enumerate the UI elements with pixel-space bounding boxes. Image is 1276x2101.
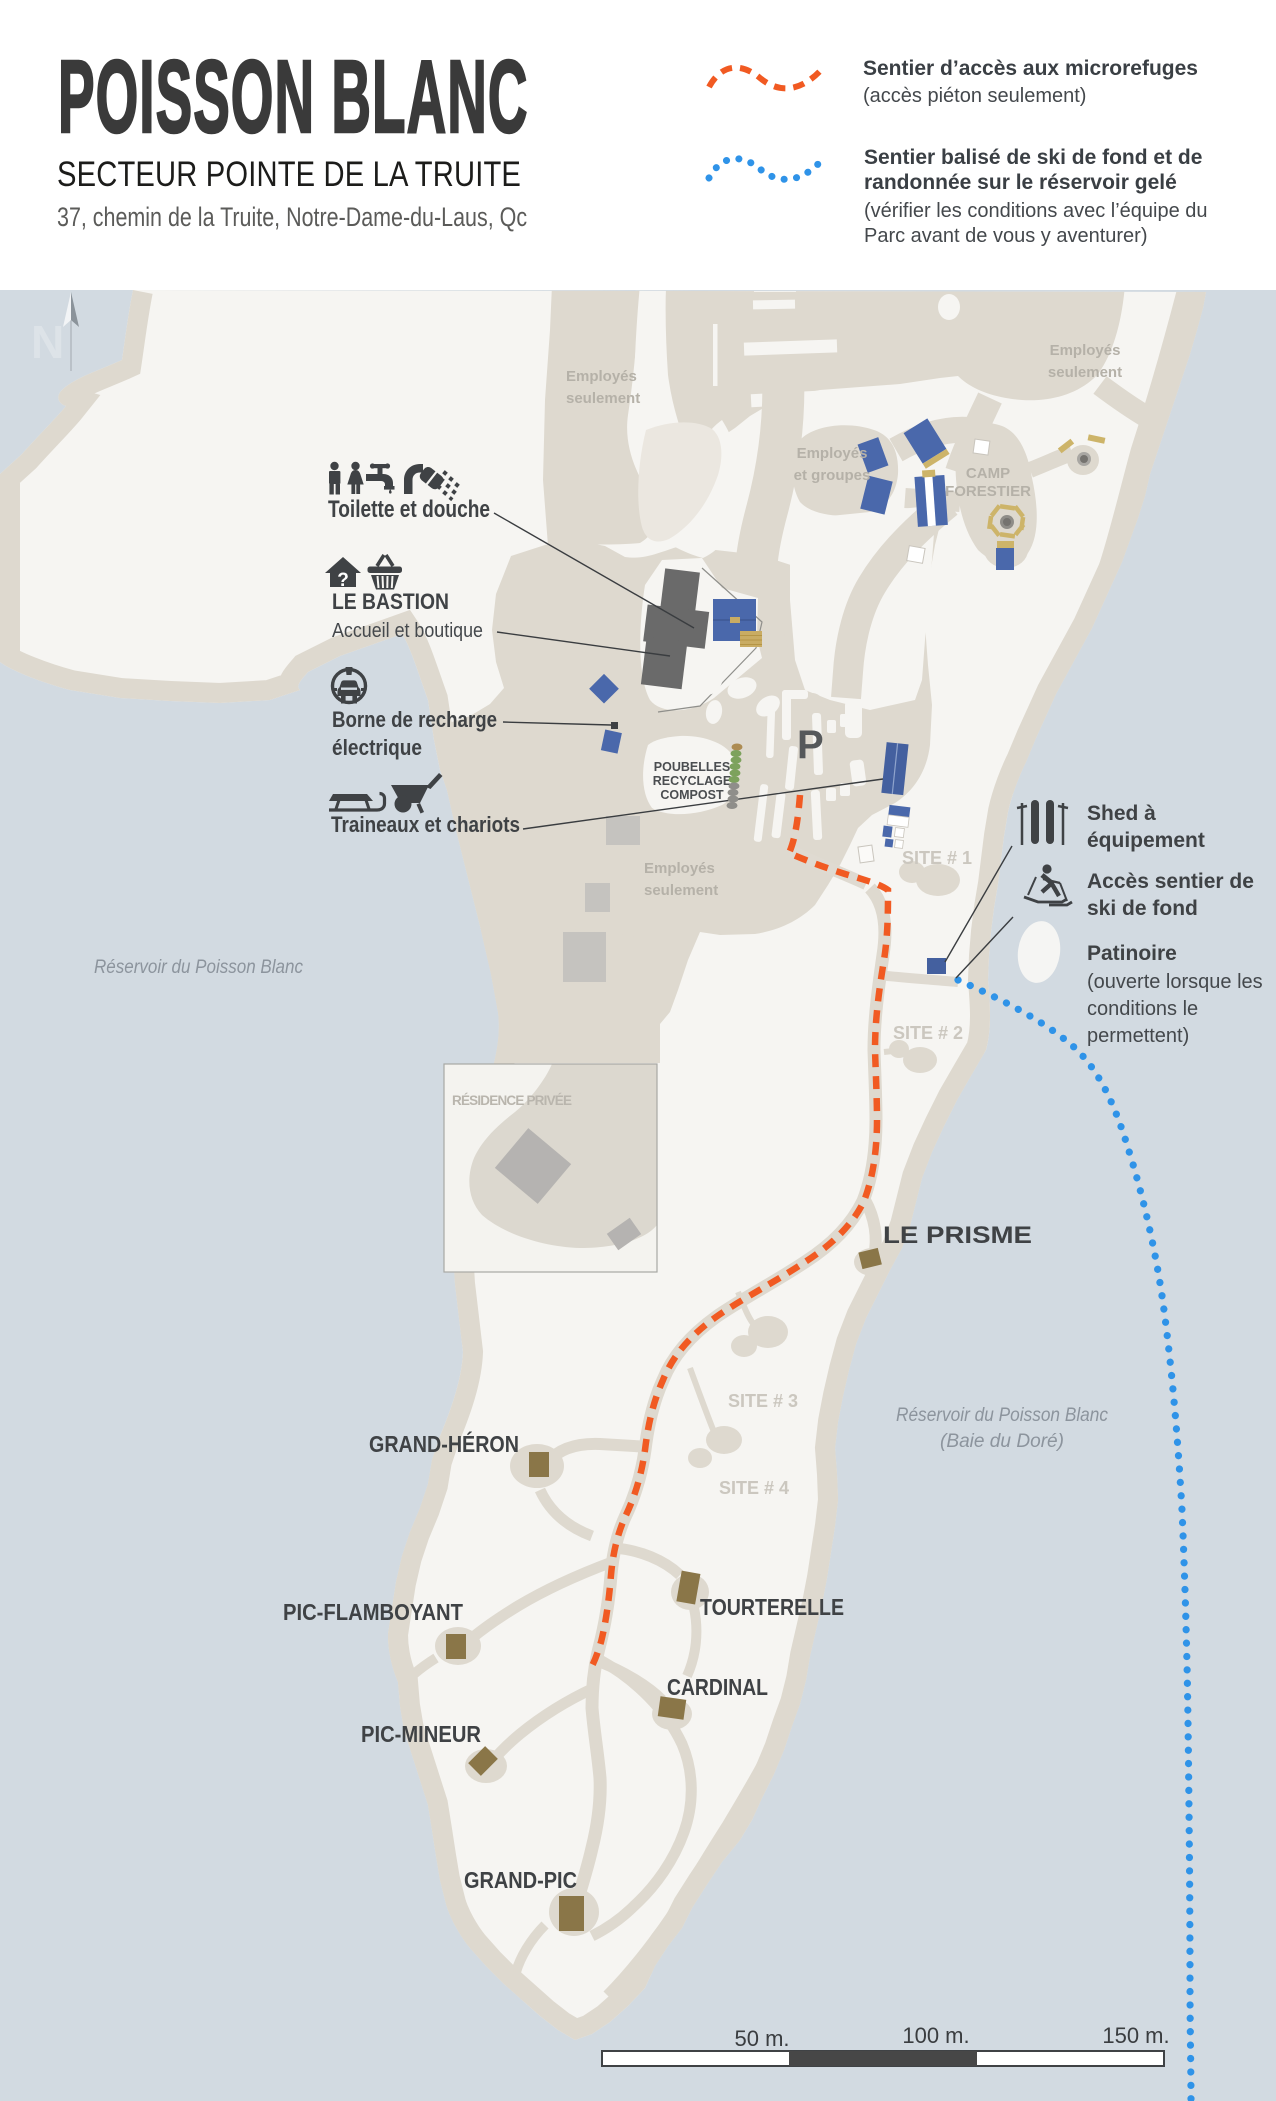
svg-text:Accès sentier de: Accès sentier de xyxy=(1087,870,1254,893)
svg-text:Employés: Employés xyxy=(797,445,868,462)
svg-text:PIC-MINEUR: PIC-MINEUR xyxy=(361,1721,481,1747)
svg-text:SITE # 1: SITE # 1 xyxy=(902,848,972,868)
svg-text:RÉSIDENCE PRIVÉE: RÉSIDENCE PRIVÉE xyxy=(452,1093,572,1108)
svg-text:SITE # 3: SITE # 3 xyxy=(728,1391,798,1411)
svg-text:50 m.: 50 m. xyxy=(734,2026,789,2051)
svg-text:150 m.: 150 m. xyxy=(1102,2023,1169,2048)
svg-text:LE PRISME: LE PRISME xyxy=(883,1222,1032,1249)
svg-text:POUBELLES: POUBELLES xyxy=(654,760,730,774)
svg-text:permettent): permettent) xyxy=(1087,1025,1189,1047)
svg-text:PIC-FLAMBOYANT: PIC-FLAMBOYANT xyxy=(283,1599,463,1625)
svg-text:TOURTERELLE: TOURTERELLE xyxy=(700,1594,844,1620)
svg-text:SITE # 2: SITE # 2 xyxy=(893,1023,963,1043)
svg-text:électrique: électrique xyxy=(332,735,422,760)
svg-text:(Baie du Doré): (Baie du Doré) xyxy=(940,1430,1064,1452)
svg-text:GRAND-PIC: GRAND-PIC xyxy=(464,1867,577,1893)
svg-text:conditions le: conditions le xyxy=(1087,998,1198,1020)
svg-text:équipement: équipement xyxy=(1087,829,1205,852)
svg-text:Patinoire: Patinoire xyxy=(1087,942,1177,965)
svg-text:seulement: seulement xyxy=(644,882,718,899)
svg-text:Accueil et boutique: Accueil et boutique xyxy=(332,620,483,642)
svg-text:100 m.: 100 m. xyxy=(902,2023,969,2048)
svg-text:seulement: seulement xyxy=(566,390,640,407)
svg-text:LE BASTION: LE BASTION xyxy=(332,589,449,614)
svg-text:Employés: Employés xyxy=(644,860,715,877)
svg-text:CAMP: CAMP xyxy=(966,465,1010,482)
svg-text:GRAND-HÉRON: GRAND-HÉRON xyxy=(369,1430,519,1457)
svg-text:Traineaux et chariots: Traineaux et chariots xyxy=(331,812,520,837)
svg-text:seulement: seulement xyxy=(1048,364,1122,381)
svg-text:et groupes: et groupes xyxy=(794,467,871,484)
svg-text:FORESTIER: FORESTIER xyxy=(945,483,1031,500)
svg-text:CARDINAL: CARDINAL xyxy=(667,1674,768,1700)
svg-text:COMPOST: COMPOST xyxy=(660,788,724,802)
svg-text:SITE # 4: SITE # 4 xyxy=(719,1478,789,1498)
svg-text:ski de fond: ski de fond xyxy=(1087,897,1198,920)
svg-text:?: ? xyxy=(337,570,349,591)
svg-text:P: P xyxy=(797,723,824,767)
svg-text:Réservoir du Poisson Blanc: Réservoir du Poisson Blanc xyxy=(896,1404,1108,1426)
svg-text:Toilette et douche: Toilette et douche xyxy=(328,496,490,523)
svg-text:N: N xyxy=(31,316,64,368)
svg-text:Shed à: Shed à xyxy=(1087,802,1156,825)
svg-text:Employés: Employés xyxy=(1050,342,1121,359)
svg-text:Réservoir du Poisson Blanc: Réservoir du Poisson Blanc xyxy=(94,956,303,978)
svg-text:RECYCLAGE: RECYCLAGE xyxy=(653,774,731,788)
svg-text:Employés: Employés xyxy=(566,368,637,385)
svg-text:(ouverte lorsque les: (ouverte lorsque les xyxy=(1087,971,1263,993)
svg-text:Borne de recharge: Borne de recharge xyxy=(332,707,497,732)
